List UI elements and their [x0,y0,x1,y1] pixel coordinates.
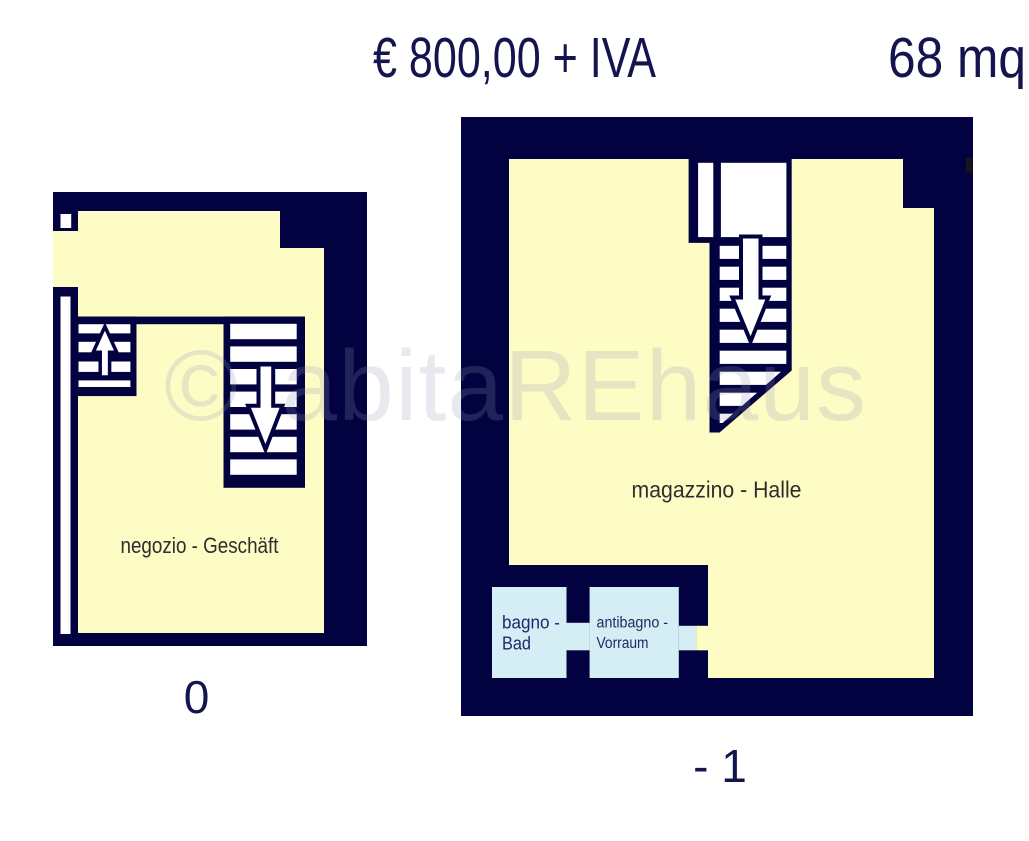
svg-text:abitaREhaus: abitaREhaus [282,330,867,442]
svg-text:0: 0 [184,671,210,723]
svg-text:magazzino - Halle: magazzino - Halle [632,477,802,503]
svg-text:negozio - Geschäft: negozio - Geschäft [121,533,279,558]
svg-text:Bad: Bad [502,634,531,654]
svg-text:©: © [164,330,238,442]
svg-text:bagno -: bagno - [502,613,560,633]
svg-text:€ 800,00 + IVA: € 800,00 + IVA [373,26,656,90]
svg-text:68 mq: 68 mq [888,26,1026,90]
svg-text:- 1: - 1 [693,740,747,792]
svg-text:antibagno -: antibagno - [597,615,669,632]
svg-text:Vorraum: Vorraum [597,635,649,652]
